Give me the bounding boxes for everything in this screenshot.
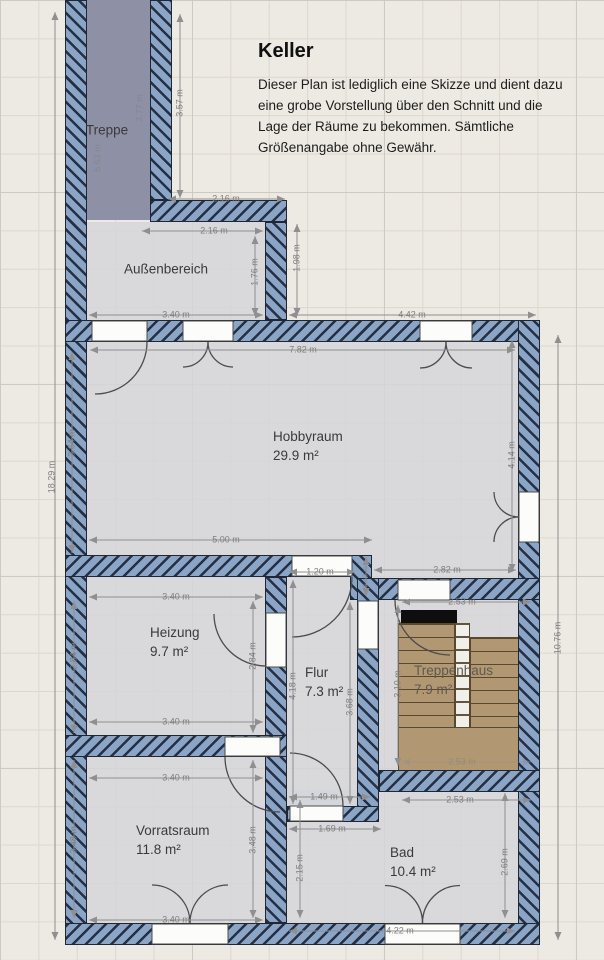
disclaimer-text: Dieser Plan ist lediglich eine Skizze un… — [258, 75, 564, 159]
dimension-label: 2.15 m — [296, 854, 305, 882]
dimension-label: 3.77 m — [136, 94, 145, 122]
room-label-flur: Flur7.3 m² — [305, 664, 343, 702]
room-area: 11.8 m² — [136, 841, 210, 860]
room-label-treppenhaus: Treppenhaus7.9 m² — [414, 662, 493, 700]
dimension-label: 1.49 m — [310, 793, 338, 802]
room-area: 7.3 m² — [305, 683, 343, 702]
room-name: Bad — [390, 844, 436, 863]
dimension-label: 2.82 m — [433, 566, 461, 575]
dimension-label: 3.68 m — [346, 688, 355, 716]
dimension-label: 2.53 m — [448, 758, 476, 767]
dimension-label: 2.16 m — [200, 227, 228, 236]
room-name: Heizung — [150, 624, 200, 643]
dimension-label: 1.76 m — [251, 258, 260, 286]
dimension-label: 4.42 m — [398, 311, 426, 320]
dimension-label: 2.53 m — [448, 598, 476, 607]
dimension-label: 3.57 m — [176, 89, 185, 117]
dimension-label: 3.40 m — [162, 718, 190, 727]
room-label-heizung: Heizung9.7 m² — [150, 624, 200, 662]
dimension-label: 5.63 m — [94, 144, 103, 172]
room-area: 9.7 m² — [150, 643, 200, 662]
dimension-label: 18.29 m — [48, 461, 57, 494]
dimension-label: 3.64 m — [68, 429, 77, 457]
room-area: 7.9 m² — [414, 681, 493, 700]
room-name: Treppe — [86, 122, 128, 141]
dimension-label: 2.84 m — [249, 642, 258, 670]
room-label-vorratsraum: Vorratsraum11.8 m² — [136, 822, 210, 860]
dimension-label: 3.40 m — [162, 311, 190, 320]
room-label-treppe: Treppe — [86, 122, 128, 141]
dimension-label: 10.76 m — [554, 622, 563, 655]
dimension-label: 2.69 m — [501, 848, 510, 876]
dimension-label: 3.40 m — [162, 916, 190, 925]
room-label-hobbyraum: Hobbyraum29.9 m² — [273, 428, 343, 466]
room-area: 29.9 m² — [273, 447, 343, 466]
dimension-label: 1.20 m — [306, 568, 334, 577]
dimension-label: 4.22 m — [386, 927, 414, 936]
room-label-aussenbereich: Außenbereich — [124, 261, 208, 280]
floor-plan: TreppeAußenbereichHobbyraum29.9 m²Heizun… — [0, 0, 604, 960]
dimension-label: 2.84 m — [70, 642, 79, 670]
dimension-label: 1.98 m — [293, 244, 302, 272]
dimension-label: 3.40 m — [162, 774, 190, 783]
dimension-label: 3.10 m — [394, 670, 403, 698]
dimension-label: 4.14 m — [508, 441, 517, 469]
room-name: Hobbyraum — [273, 428, 343, 447]
dimension-label: 2.16 m — [212, 195, 240, 204]
room-area: 10.4 m² — [390, 863, 436, 882]
dimension-label: 0.42 m — [363, 566, 370, 587]
dimension-label: 3.48 m — [249, 826, 258, 854]
dimension-label: 4.18 m — [289, 672, 298, 700]
dimension-label: 3.40 m — [162, 593, 190, 602]
room-name: Treppenhaus — [414, 662, 493, 681]
room-name: Vorratsraum — [136, 822, 210, 841]
page-title: Keller — [258, 40, 564, 63]
dimension-label: 5.00 m — [212, 536, 240, 545]
room-name: Flur — [305, 664, 343, 683]
room-label-bad: Bad10.4 m² — [390, 844, 436, 882]
title-block: Keller Dieser Plan ist lediglich eine Sk… — [258, 40, 564, 159]
dimension-label: 7.82 m — [289, 346, 317, 355]
dimension-label: 2.53 m — [446, 796, 474, 805]
room-name: Außenbereich — [124, 261, 208, 280]
dimension-label: 3.48 m — [70, 826, 79, 854]
dimension-label: 1.69 m — [318, 825, 346, 834]
